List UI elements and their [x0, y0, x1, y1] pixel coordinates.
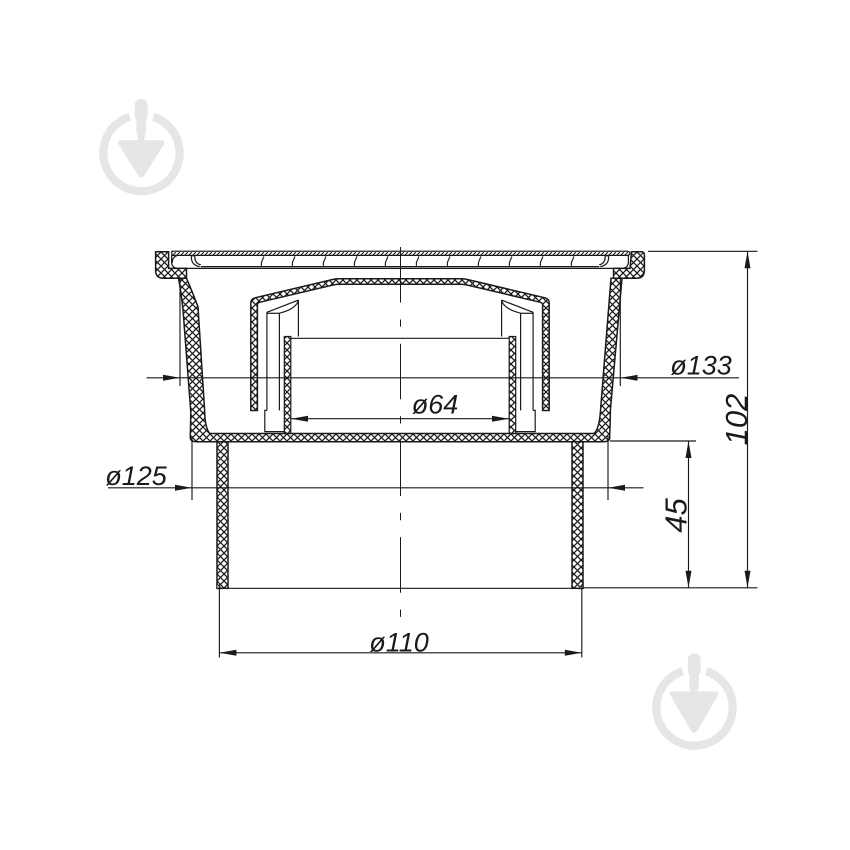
svg-text:ø64: ø64 — [412, 390, 459, 420]
svg-text:45: 45 — [659, 498, 694, 533]
svg-text:ø110: ø110 — [369, 628, 429, 658]
svg-text:102: 102 — [719, 394, 754, 446]
svg-text:ø125: ø125 — [105, 461, 168, 491]
svg-text:ø133: ø133 — [670, 351, 732, 381]
